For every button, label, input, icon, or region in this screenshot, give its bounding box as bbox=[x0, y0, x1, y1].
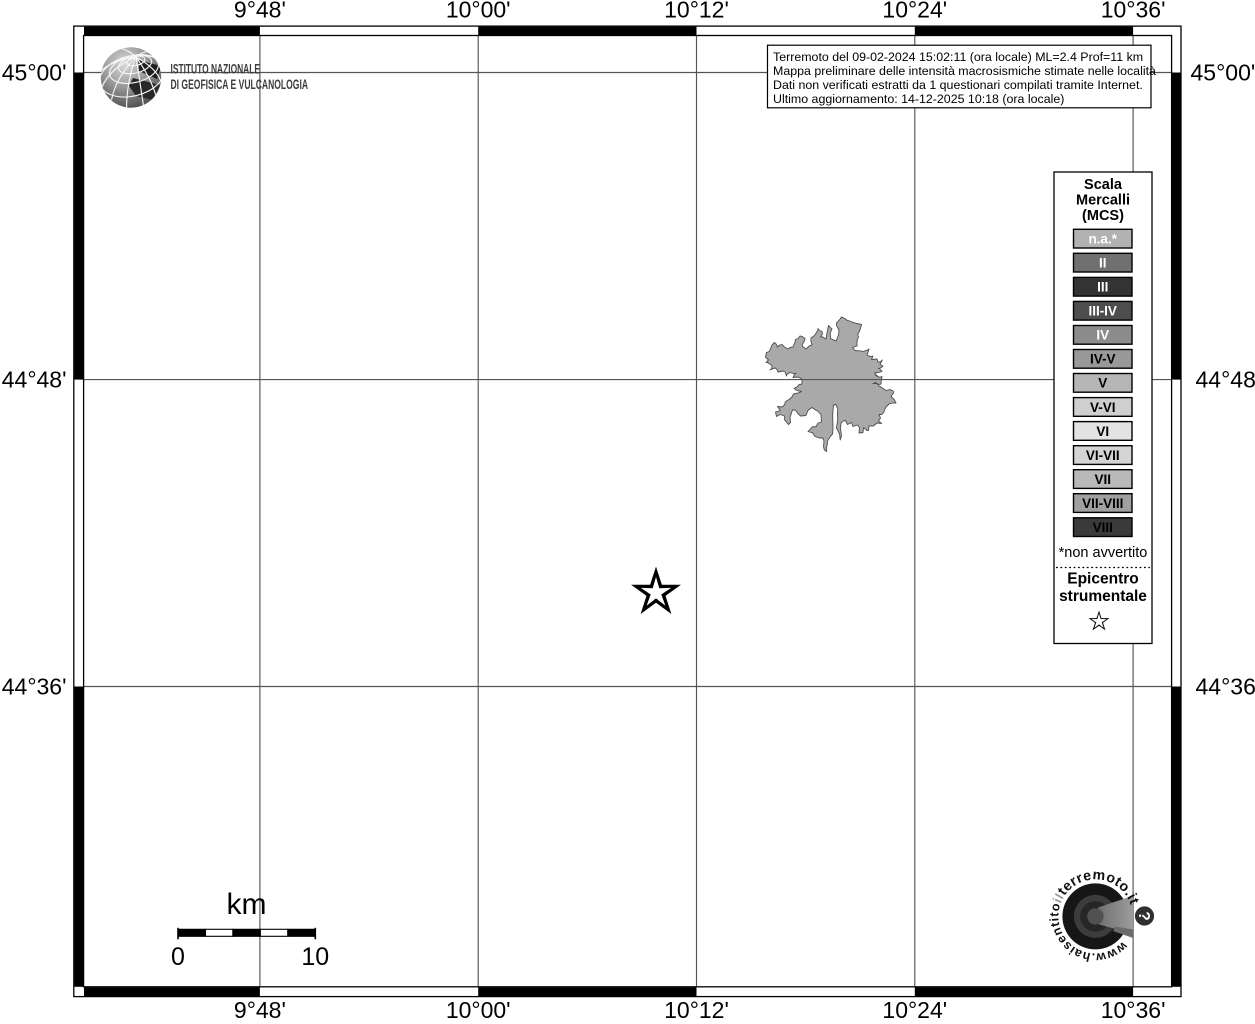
svg-text:45°00': 45°00' bbox=[2, 60, 67, 86]
svg-text:Scala: Scala bbox=[1084, 177, 1123, 193]
svg-text:?: ? bbox=[1135, 911, 1152, 920]
svg-text:n.a.*: n.a.* bbox=[1088, 232, 1117, 247]
svg-text:10°36': 10°36' bbox=[1101, 0, 1166, 23]
svg-text:10: 10 bbox=[301, 943, 329, 971]
svg-text:10°36': 10°36' bbox=[1101, 997, 1166, 1023]
svg-text:VI-VII: VI-VII bbox=[1086, 448, 1120, 463]
svg-text:Terremoto del 09-02-2024 15:02: Terremoto del 09-02-2024 15:02:11 (ora l… bbox=[773, 50, 1143, 64]
svg-text:V: V bbox=[1098, 376, 1107, 391]
svg-text:44°36': 44°36' bbox=[1196, 674, 1255, 700]
svg-text:10°00': 10°00' bbox=[446, 997, 511, 1023]
svg-text:VII-VIII: VII-VIII bbox=[1082, 496, 1123, 511]
svg-text:0: 0 bbox=[171, 943, 185, 971]
svg-text:VIII: VIII bbox=[1093, 520, 1113, 535]
svg-text:V-VI: V-VI bbox=[1090, 400, 1116, 415]
svg-text:*non avvertito: *non avvertito bbox=[1059, 545, 1148, 561]
svg-text:IV: IV bbox=[1096, 328, 1109, 343]
svg-text:45°00': 45°00' bbox=[1191, 60, 1255, 86]
svg-text:IV-V: IV-V bbox=[1090, 352, 1116, 367]
svg-text:10°12': 10°12' bbox=[664, 0, 729, 23]
svg-text:10°24': 10°24' bbox=[882, 0, 947, 23]
svg-text:Mercalli: Mercalli bbox=[1076, 193, 1130, 209]
svg-text:Mappa preliminare delle intens: Mappa preliminare delle intensità macros… bbox=[773, 64, 1156, 78]
svg-text:km: km bbox=[227, 888, 267, 921]
svg-text:VI: VI bbox=[1096, 424, 1109, 439]
svg-text:10°12': 10°12' bbox=[664, 997, 729, 1023]
svg-text:Ultimo aggiornamento: 14-12-20: Ultimo aggiornamento: 14-12-2025 10:18 (… bbox=[773, 92, 1064, 106]
svg-text:9°48': 9°48' bbox=[234, 997, 286, 1023]
svg-text:44°36': 44°36' bbox=[2, 674, 67, 700]
svg-text:44°48': 44°48' bbox=[1196, 367, 1255, 393]
svg-text:DI GEOFISICA E VULCANOLOGIA: DI GEOFISICA E VULCANOLOGIA bbox=[171, 76, 309, 92]
svg-text:III: III bbox=[1097, 280, 1108, 295]
svg-text:VII: VII bbox=[1094, 472, 1111, 487]
svg-text:II: II bbox=[1099, 256, 1107, 271]
svg-text:10°00': 10°00' bbox=[446, 0, 511, 23]
svg-text:(MCS): (MCS) bbox=[1082, 208, 1124, 224]
svg-text:Epicentro: Epicentro bbox=[1067, 571, 1138, 588]
svg-text:Dati non verificati estratti d: Dati non verificati estratti da 1 questi… bbox=[773, 78, 1143, 92]
svg-text:10°24': 10°24' bbox=[882, 997, 947, 1023]
svg-text:strumentale: strumentale bbox=[1059, 588, 1147, 605]
svg-text:III-IV: III-IV bbox=[1088, 304, 1117, 319]
svg-text:ISTITUTO NAZIONALE: ISTITUTO NAZIONALE bbox=[171, 61, 261, 77]
svg-text:9°48': 9°48' bbox=[234, 0, 286, 23]
svg-text:44°48': 44°48' bbox=[2, 367, 67, 393]
